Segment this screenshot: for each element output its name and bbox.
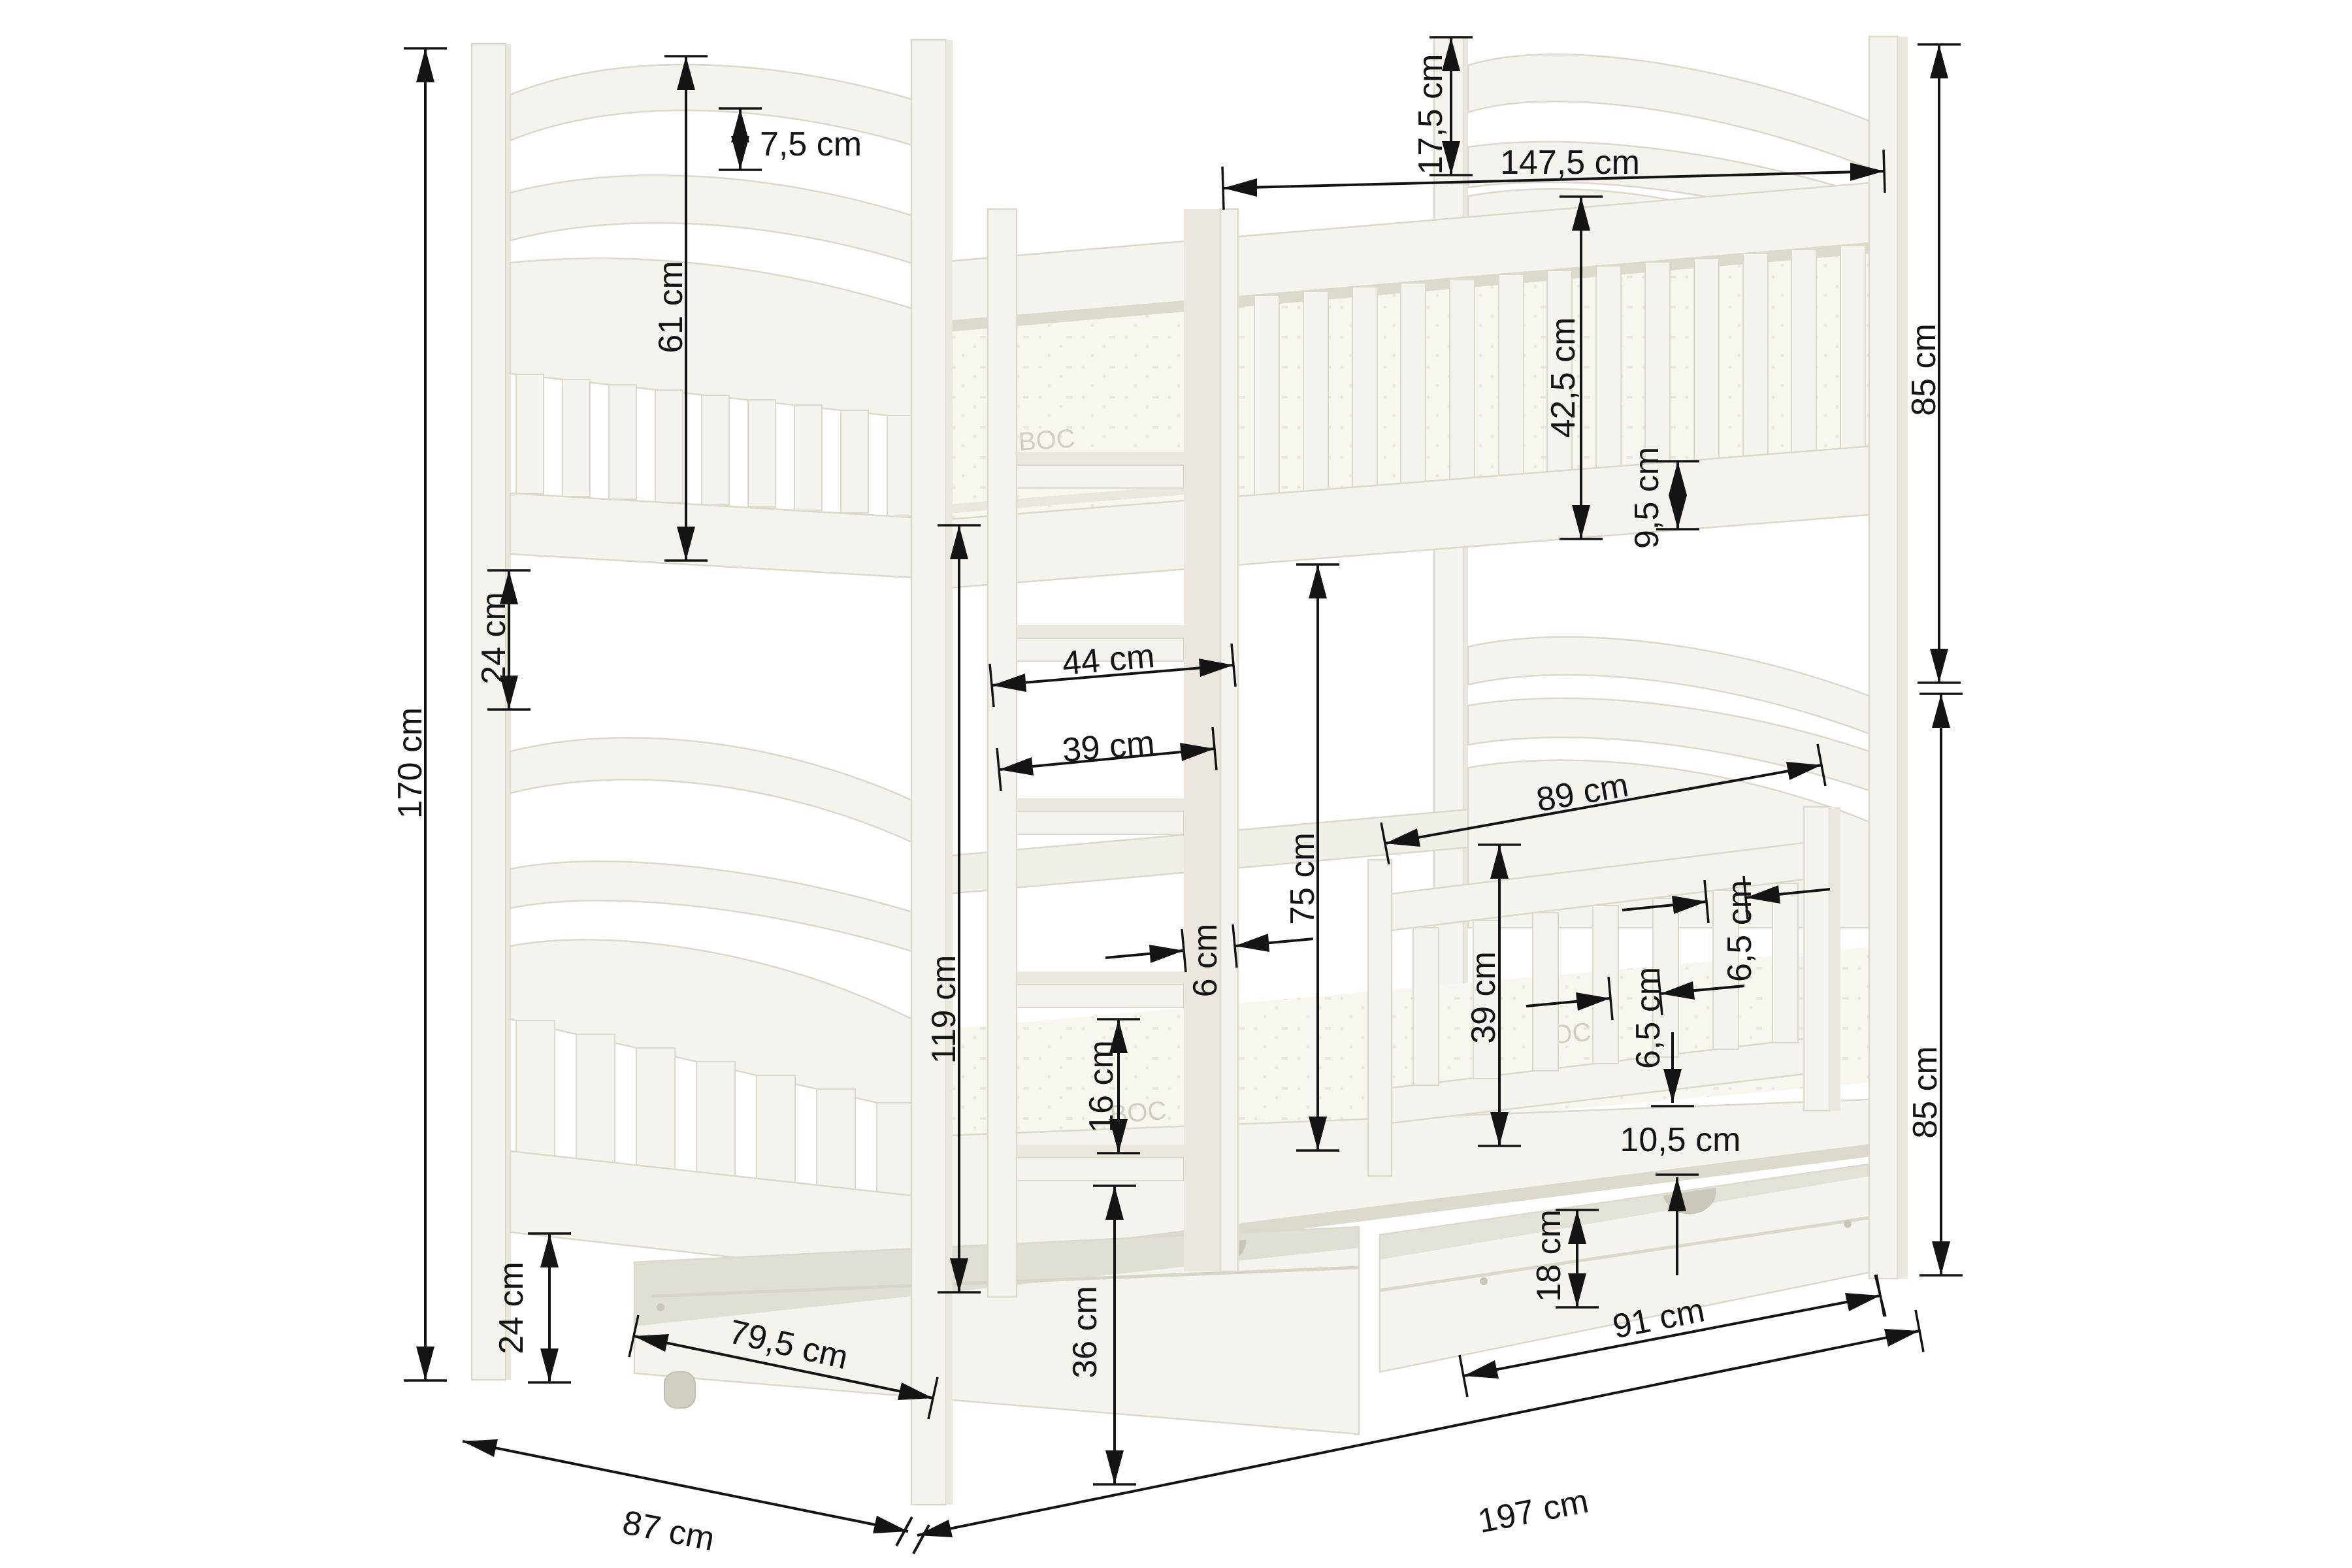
svg-text:61 cm: 61 cm — [652, 261, 690, 353]
svg-text:36 cm: 36 cm — [1066, 1286, 1104, 1379]
svg-text:170 cm: 170 cm — [391, 708, 429, 819]
svg-text:24 cm: 24 cm — [493, 1262, 531, 1354]
svg-text:75 cm: 75 cm — [1284, 832, 1322, 925]
svg-text:42,5 cm: 42,5 cm — [1544, 318, 1582, 438]
svg-text:85 cm: 85 cm — [1905, 323, 1943, 416]
svg-text:6,5 cm: 6,5 cm — [1721, 880, 1759, 982]
svg-text:18 cm: 18 cm — [1530, 1209, 1568, 1302]
svg-text:85 cm: 85 cm — [1906, 1046, 1944, 1139]
svg-text:10,5 cm: 10,5 cm — [1620, 1121, 1741, 1159]
svg-text:147,5 cm: 147,5 cm — [1500, 144, 1640, 182]
svg-text:16 cm: 16 cm — [1083, 1040, 1120, 1133]
svg-text:9,5 cm: 9,5 cm — [1628, 447, 1666, 549]
svg-text:6,5 cm: 6,5 cm — [1629, 967, 1667, 1069]
svg-text:BOC: BOC — [1018, 424, 1077, 457]
svg-text:39 cm: 39 cm — [1060, 724, 1156, 770]
svg-text:39 cm: 39 cm — [1465, 951, 1503, 1044]
svg-text:44 cm: 44 cm — [1060, 637, 1156, 683]
svg-text:6 cm: 6 cm — [1186, 924, 1224, 998]
svg-text:17,5 cm: 17,5 cm — [1412, 54, 1450, 175]
svg-text:119 cm: 119 cm — [925, 955, 963, 1064]
svg-text:7,5 cm: 7,5 cm — [760, 125, 862, 163]
svg-text:24 cm: 24 cm — [475, 592, 513, 685]
